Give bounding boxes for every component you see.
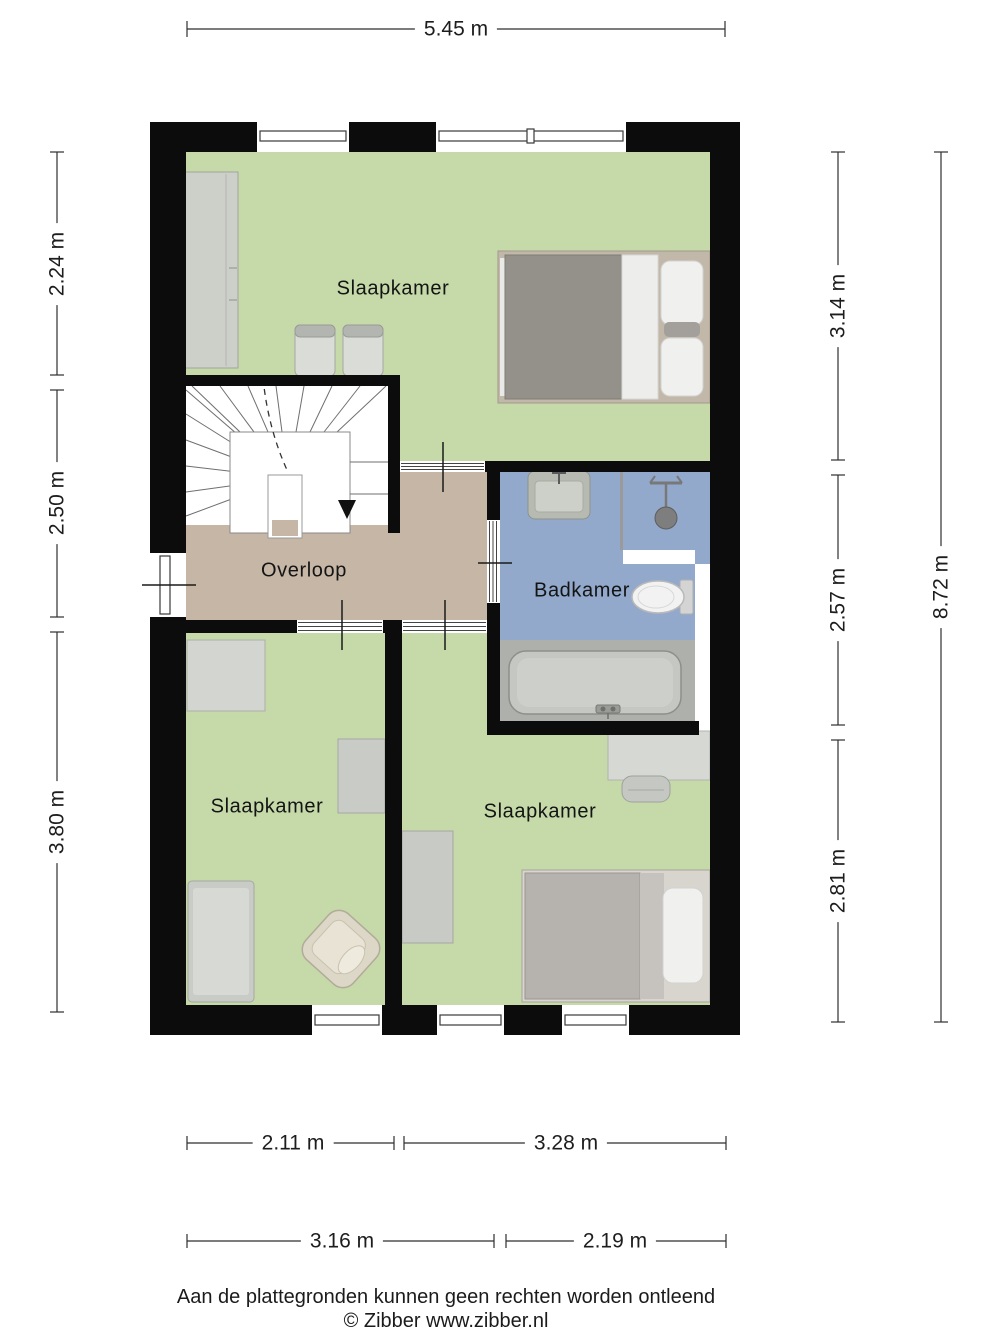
wardrobe-top-bedroom bbox=[182, 172, 238, 368]
door-landing-bedroom-left bbox=[297, 620, 383, 633]
room-label-bedroom-left: Slaapkamer bbox=[211, 796, 324, 819]
window-bottom-2 bbox=[437, 1005, 504, 1035]
window-bottom-1 bbox=[312, 1005, 382, 1035]
wall-landing-bottom-left bbox=[186, 620, 297, 633]
room-label-bathroom: Badkamer bbox=[534, 580, 630, 603]
door-landing-bathroom bbox=[487, 520, 500, 603]
single-bed bbox=[522, 870, 710, 1002]
stair-newel bbox=[268, 475, 302, 538]
footer-disclaimer: Aan de plattegronden kunnen geen rechten… bbox=[177, 1286, 715, 1309]
closet-left-bedroom bbox=[187, 640, 265, 711]
dim-label-right-total: 8.72 m bbox=[929, 546, 952, 628]
floorplan-page: Slaapkamer Overloop Badkamer Slaapkamer … bbox=[0, 0, 1000, 1333]
sink bbox=[528, 471, 590, 519]
wall-bathroom-bottom bbox=[487, 721, 699, 735]
wall-outer-right bbox=[710, 122, 740, 1035]
floor-bathroom-niche bbox=[695, 564, 710, 735]
footer-copyright: © Zibber www.zibber.nl bbox=[344, 1310, 549, 1333]
dim-label-bottom-upper-2: 3.28 m bbox=[525, 1131, 607, 1154]
wall-stair-right bbox=[388, 375, 400, 533]
dim-label-right-1: 3.14 m bbox=[826, 265, 849, 347]
wall-landing-bottom-mid bbox=[383, 620, 402, 633]
dim-label-right-3: 2.81 m bbox=[826, 840, 849, 922]
wall-stair-top bbox=[186, 375, 400, 386]
window-top-1 bbox=[257, 122, 349, 152]
bathtub bbox=[509, 651, 681, 719]
room-label-bedroom-top: Slaapkamer bbox=[337, 278, 450, 301]
wall-bedroom-bathroom bbox=[485, 461, 710, 472]
dim-label-left-2: 2.50 m bbox=[45, 462, 68, 544]
stairs bbox=[186, 378, 388, 538]
toilet bbox=[632, 580, 693, 614]
shower-shelf bbox=[623, 550, 695, 564]
wardrobe-right-bedroom bbox=[402, 831, 453, 943]
dim-label-right-2: 2.57 m bbox=[826, 559, 849, 641]
floor-plan-drawing bbox=[0, 0, 1000, 1333]
bed-left-bedroom bbox=[188, 881, 254, 1002]
shower-divider-wall bbox=[620, 472, 623, 550]
dim-label-bottom-lower-1: 3.16 m bbox=[301, 1229, 383, 1252]
wall-bedroom-divider bbox=[385, 633, 402, 1005]
wall-bathroom-left-lower bbox=[487, 603, 500, 735]
room-label-landing: Overloop bbox=[261, 560, 347, 583]
dim-label-top-width: 5.45 m bbox=[415, 17, 497, 40]
wall-bathroom-left-upper bbox=[487, 461, 500, 520]
dim-label-bottom-lower-2: 2.19 m bbox=[574, 1229, 656, 1252]
desk-left-bedroom bbox=[338, 739, 385, 813]
window-top-2 bbox=[436, 122, 626, 152]
double-bed bbox=[498, 251, 710, 403]
dim-label-left-1: 2.24 m bbox=[45, 223, 68, 305]
window-bottom-3 bbox=[562, 1005, 629, 1035]
dim-label-bottom-upper-1: 2.11 m bbox=[253, 1131, 334, 1154]
room-label-bedroom-right: Slaapkamer bbox=[484, 801, 597, 824]
dim-label-left-3: 3.80 m bbox=[45, 781, 68, 863]
